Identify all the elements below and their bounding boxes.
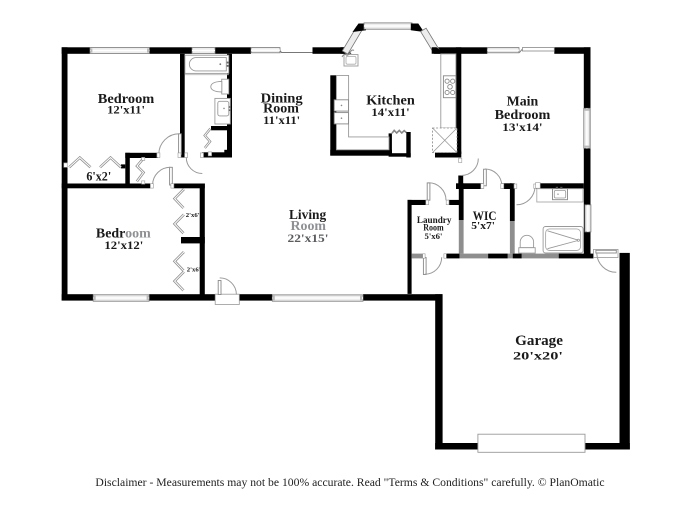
svg-text:5'x7': 5'x7'	[471, 220, 495, 232]
svg-text:2'x6': 2'x6'	[186, 212, 200, 219]
svg-text:5'x6': 5'x6'	[425, 232, 443, 241]
svg-text:2'x6': 2'x6'	[187, 267, 201, 274]
svg-text:14'x11': 14'x11'	[371, 105, 409, 119]
svg-text:Disclaimer - Measurements may: Disclaimer - Measurements may not be 100…	[95, 475, 604, 489]
svg-text:6'x2': 6'x2'	[86, 170, 111, 184]
svg-text:12'x12': 12'x12'	[104, 238, 143, 252]
svg-text:13'x14': 13'x14'	[502, 120, 542, 134]
svg-text:Garage: Garage	[515, 333, 563, 349]
svg-text:11'x11': 11'x11'	[263, 113, 300, 127]
svg-text:22'x15': 22'x15'	[288, 231, 329, 245]
svg-text:20'x20': 20'x20'	[513, 348, 563, 362]
svg-text:12'x11': 12'x11'	[107, 102, 145, 116]
